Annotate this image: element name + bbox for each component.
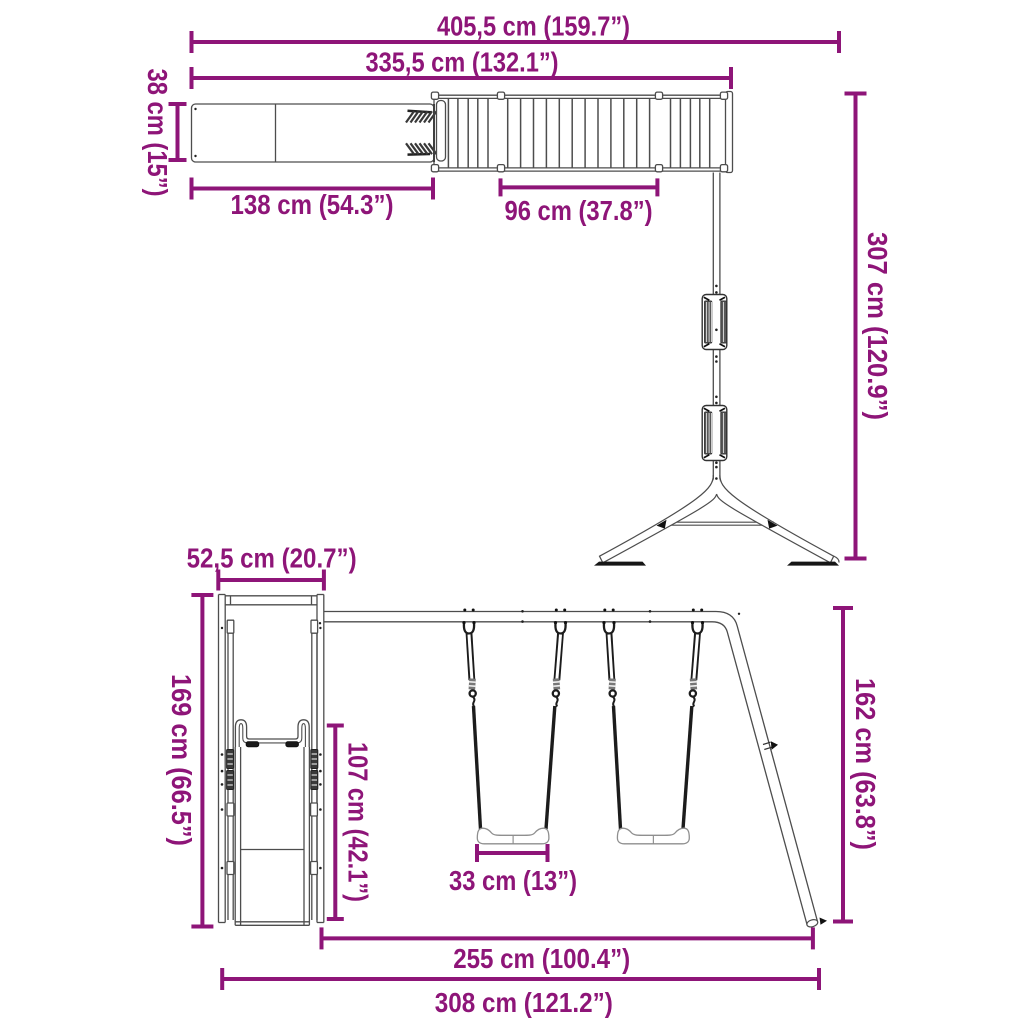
svg-text:107 cm (42.1”): 107 cm (42.1”) — [342, 742, 373, 902]
svg-text:138 cm (54.3”): 138 cm (54.3”) — [231, 189, 394, 220]
svg-text:307 cm (120.9”): 307 cm (120.9”) — [862, 232, 893, 420]
svg-text:52,5 cm (20.7”): 52,5 cm (20.7”) — [187, 543, 357, 574]
svg-text:405,5 cm (159.7”): 405,5 cm (159.7”) — [437, 11, 630, 42]
svg-text:33 cm (13”): 33 cm (13”) — [449, 865, 577, 896]
svg-text:169 cm (66.5”): 169 cm (66.5”) — [166, 674, 197, 846]
svg-text:38 cm (15”): 38 cm (15”) — [142, 69, 173, 197]
svg-text:308 cm (121.2”): 308 cm (121.2”) — [435, 987, 613, 1018]
svg-text:255 cm (100.4”): 255 cm (100.4”) — [453, 943, 630, 974]
svg-text:96 cm (37.8”): 96 cm (37.8”) — [505, 195, 653, 226]
svg-text:335,5 cm (132.1”): 335,5 cm (132.1”) — [366, 47, 559, 78]
svg-text:162 cm (63.8”): 162 cm (63.8”) — [850, 678, 881, 850]
